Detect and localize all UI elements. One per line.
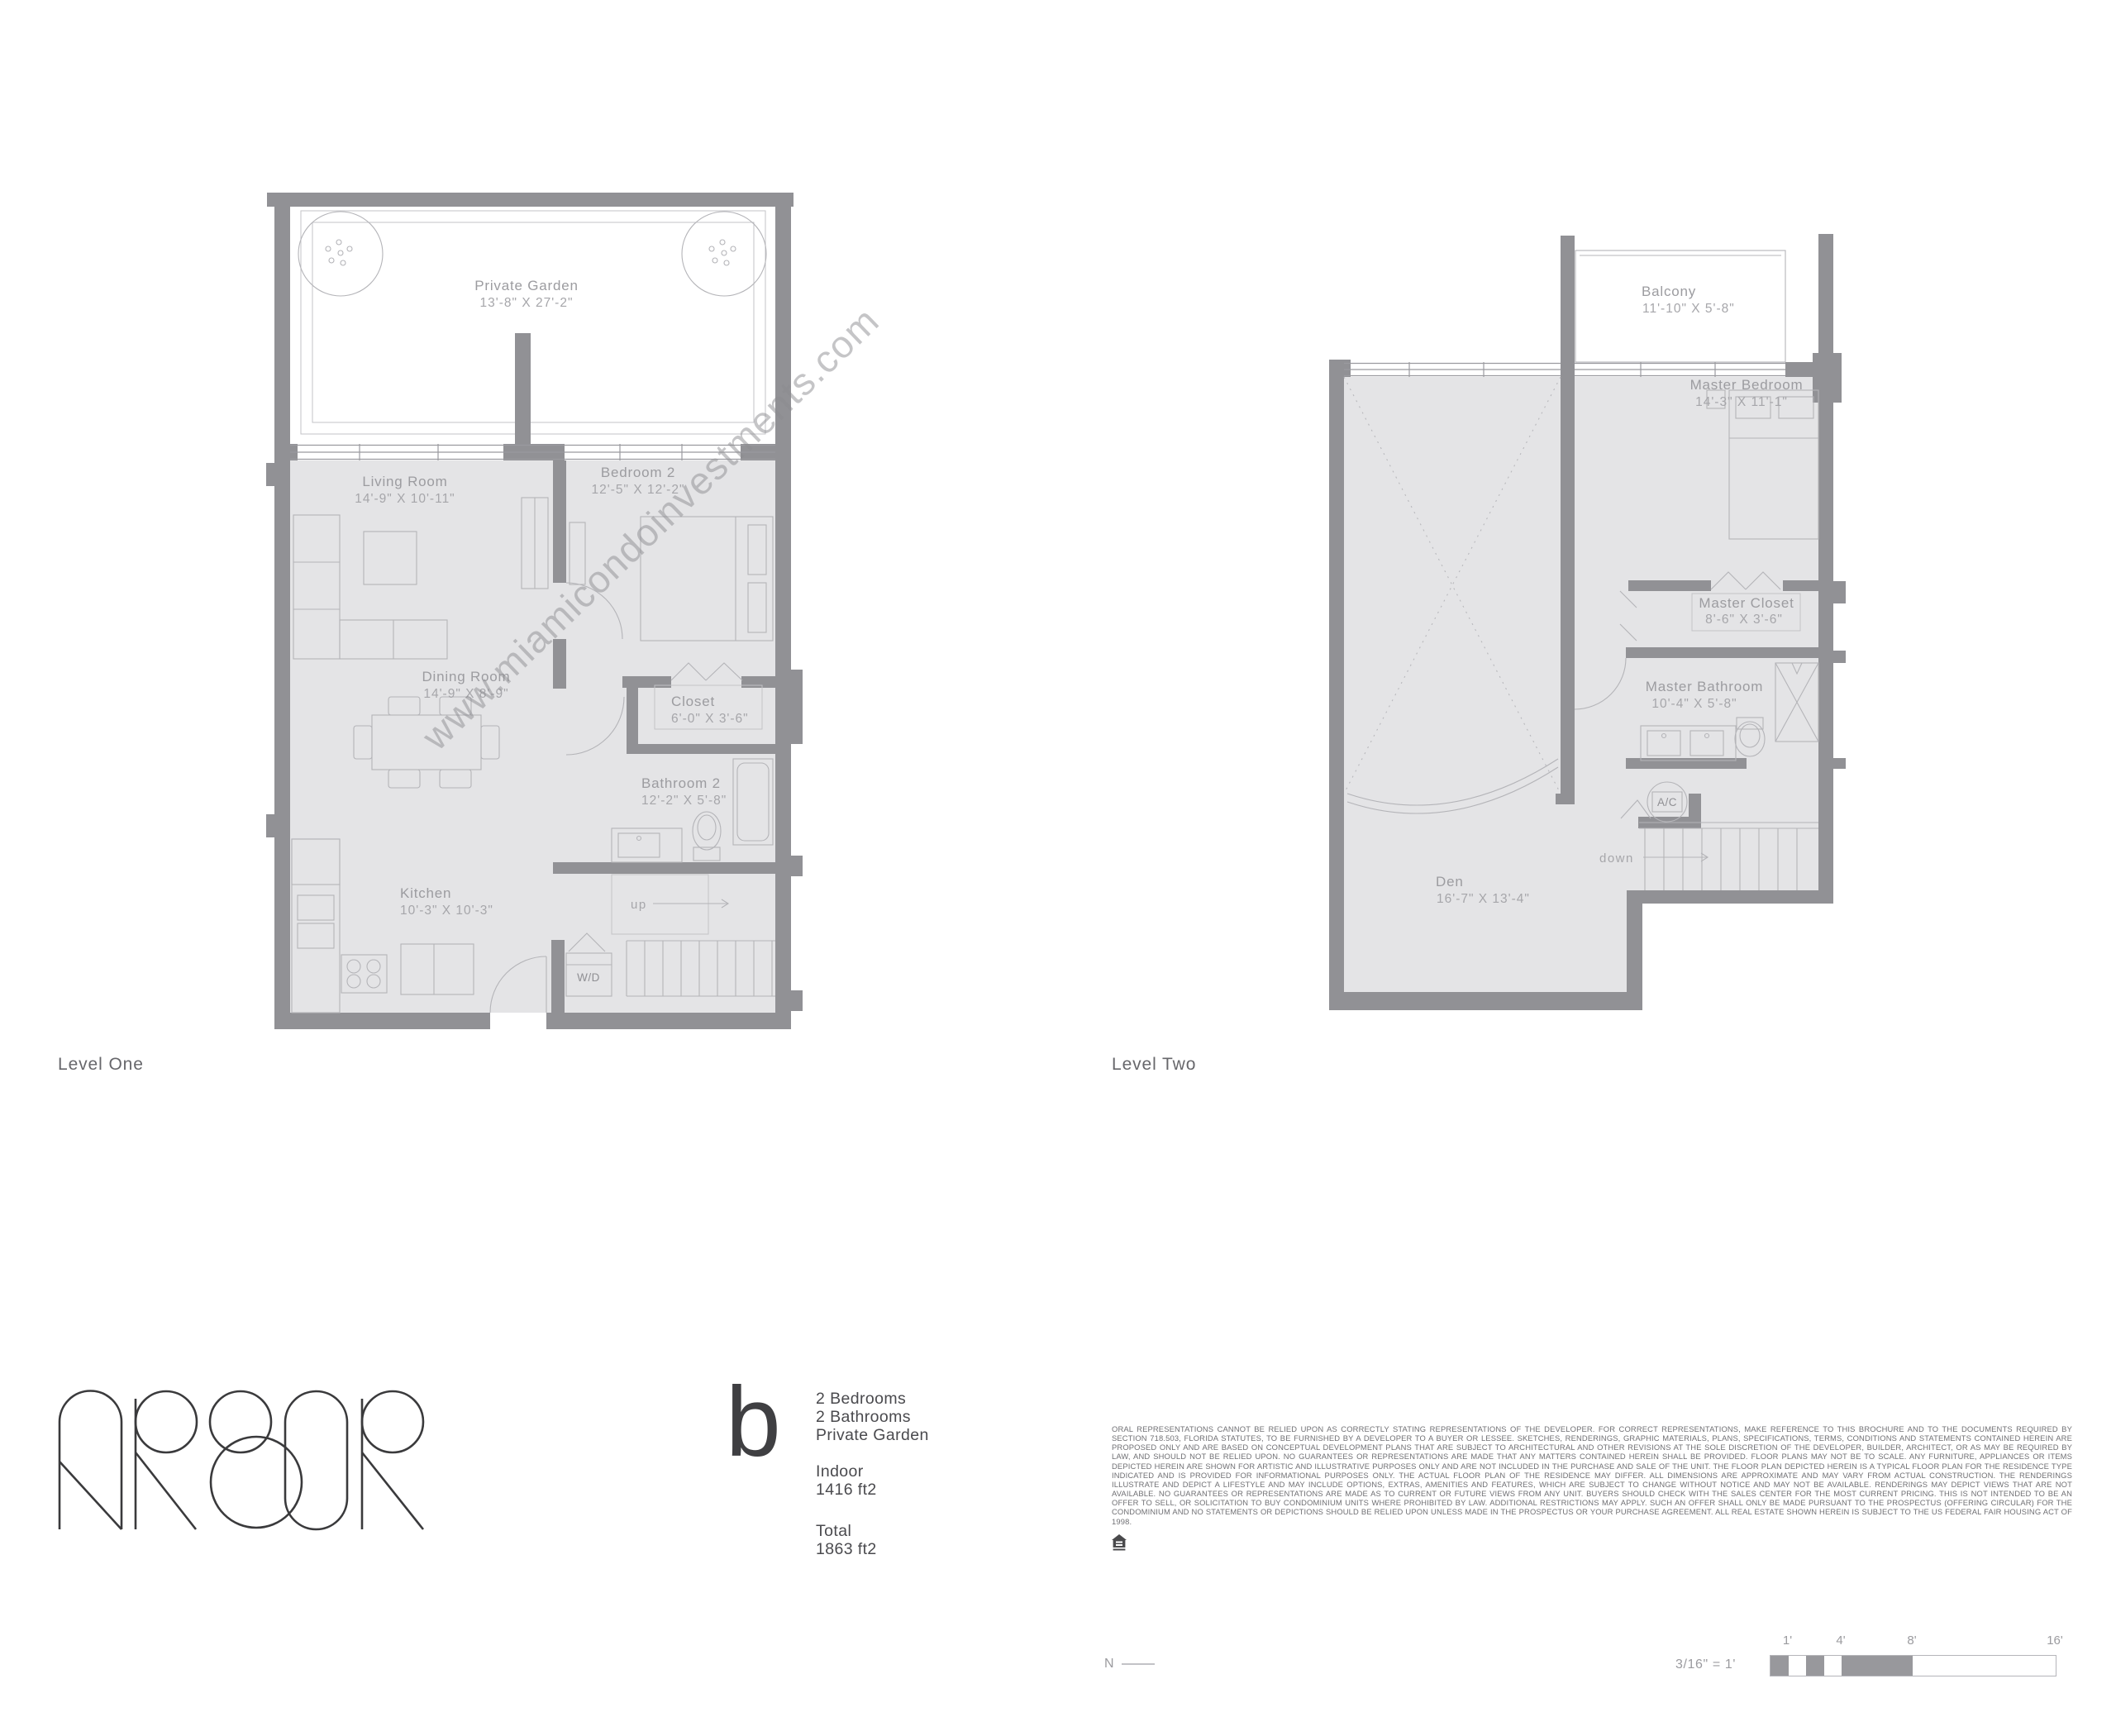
room-label-den: Den <box>1436 874 1464 889</box>
room-dim-balcony: 11'-10" X 5'-8" <box>1642 302 1735 316</box>
scale-bar <box>1770 1655 2056 1676</box>
room-dim-kitchen: 10'-3" X 10'-3" <box>400 904 493 918</box>
unit-total-area: Total 1863 ft2 <box>816 1522 877 1558</box>
total-value: 1863 ft2 <box>816 1540 877 1558</box>
room-dim-closet: 6'-0" X 3'-6" <box>671 712 749 726</box>
room-label-master-closet: Master Closet <box>1699 595 1794 611</box>
ac-label: A/C <box>1657 796 1677 808</box>
up-label: up <box>631 898 647 912</box>
room-dim-master-closet: 8'-6" X 3'-6" <box>1705 613 1783 627</box>
room-label-master-bathroom: Master Bathroom <box>1646 679 1763 694</box>
unit-feature-bedrooms: 2 Bedrooms <box>816 1390 929 1408</box>
scale-ratio-label: 3/16" = 1' <box>1649 1657 1736 1672</box>
room-label-bathroom-2: Bathroom 2 <box>641 775 721 791</box>
room-label-kitchen: Kitchen <box>400 885 451 901</box>
scale-tick-1ft: 1' <box>1783 1633 1792 1648</box>
indoor-value: 1416 ft2 <box>816 1481 877 1499</box>
scale-bar-segment-2-3 <box>1806 1656 1824 1676</box>
room-label-living-room: Living Room <box>362 474 447 489</box>
room-dim-den: 16'-7" X 13'-4" <box>1437 892 1530 906</box>
scale-tick-8ft: 8' <box>1907 1633 1916 1648</box>
washer-dryer-label: W/D <box>577 971 600 984</box>
total-label: Total <box>816 1522 877 1540</box>
room-label-closet: Closet <box>671 694 715 709</box>
room-label-bedroom-2: Bedroom 2 <box>601 465 675 480</box>
logo-letter-r2 <box>362 1391 423 1529</box>
equal-housing-icon <box>1112 1534 1127 1551</box>
north-line <box>1122 1663 1155 1665</box>
room-label-master-bedroom: Master Bedroom <box>1690 377 1804 393</box>
level-two-caption: Level Two <box>1112 1055 1196 1075</box>
scale-bar-segment-4-8 <box>1842 1656 1913 1676</box>
room-dim-master-bathroom: 10'-4" X 5'-8" <box>1651 697 1737 711</box>
unit-features: 2 Bedrooms 2 Bathrooms Private Garden <box>816 1390 929 1444</box>
unit-feature-bathrooms: 2 Bathrooms <box>816 1408 929 1426</box>
arbor-logo: ARBOR <box>55 1387 428 1533</box>
floorplan-page: { "watermark": "www.miamicondoinvestment… <box>0 0 2116 1736</box>
room-label-private-garden: Private Garden <box>474 278 579 293</box>
unit-letter: b <box>726 1372 781 1471</box>
unit-feature-garden: Private Garden <box>816 1426 929 1444</box>
level-one-caption: Level One <box>58 1055 144 1075</box>
room-dim-master-bedroom: 14'-3" X 11'-1" <box>1695 395 1788 409</box>
north-label: N <box>1104 1657 1114 1671</box>
private-garden-landscaping <box>298 211 766 434</box>
level-two-plan: Balcony 11'-10" X 5'-8" Master Bedroom 1… <box>1318 223 1864 1042</box>
room-label-balcony: Balcony <box>1642 284 1696 299</box>
room-dim-private-garden: 13'-8" X 27'-2" <box>480 296 574 310</box>
scale-tick-16ft: 16' <box>2047 1633 2063 1648</box>
north-indicator: N <box>1104 1657 1155 1672</box>
level-one-room-fill <box>290 460 775 1013</box>
down-label: down <box>1599 851 1634 866</box>
scale-tick-4ft: 4' <box>1836 1633 1845 1648</box>
legal-disclaimer: ORAL REPRESENTATIONS CANNOT BE RELIED UP… <box>1112 1424 2072 1526</box>
room-dim-bathroom-2: 12'-2" X 5'-8" <box>641 794 727 808</box>
logo-letter-a <box>60 1391 122 1530</box>
unit-indoor-area: Indoor 1416 ft2 <box>816 1462 877 1499</box>
logo-letter-r1 <box>136 1391 197 1529</box>
scale-bar-segment-0-1 <box>1770 1656 1789 1676</box>
indoor-label: Indoor <box>816 1462 877 1481</box>
scale-ticks: 1' 4' 8' 16' <box>1770 1633 2055 1648</box>
room-dim-living-room: 14'-9" X 10'-11" <box>355 492 455 506</box>
